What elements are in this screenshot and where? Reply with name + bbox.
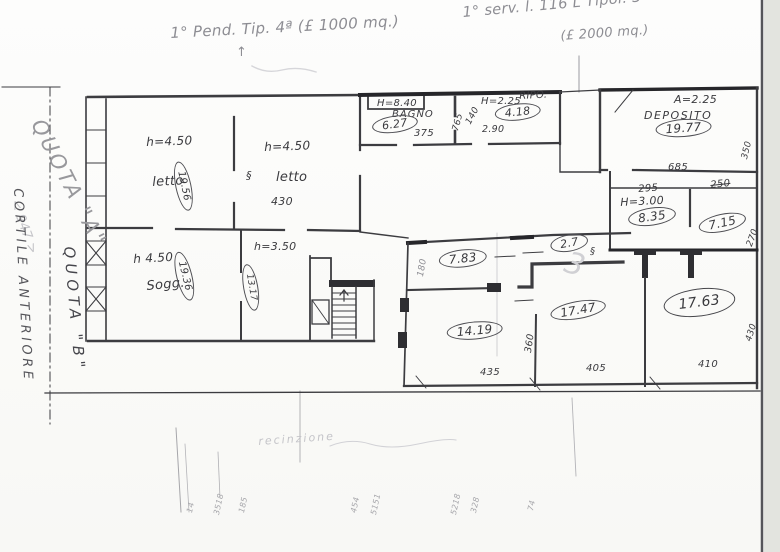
room-letto2-name: letto (276, 171, 307, 184)
door-symbol: § (590, 247, 595, 257)
dim-405: 405 (586, 364, 606, 374)
room-rip-name: RIPO. (519, 91, 548, 102)
dim-410: 410 (698, 360, 718, 370)
dim-435: 435 (480, 368, 500, 378)
door-leaf (615, 90, 633, 112)
scanned-floor-plan-page: 1° Pend. Tip. 4ª (£ 1000 mq.) ↑ 1° serv.… (0, 0, 780, 552)
room-350-height: h=3.50 (254, 241, 296, 252)
room-letto2-height: h=4.50 (264, 139, 311, 153)
door-symbol: § (246, 170, 252, 181)
room-letto1-height: h=4.50 (146, 134, 193, 148)
room-bagno-width: 375 (414, 129, 434, 139)
courtyard-line (45, 391, 760, 393)
scan-edge-band (764, 0, 780, 552)
room-deposito-width: 685 (668, 163, 688, 173)
room-bagno-height: H=8.40 (377, 99, 417, 109)
room-sogg-height: h 4.50 (133, 251, 174, 265)
dim-250-struck: 250 (710, 179, 731, 191)
scan-bottom-shadow (0, 541, 780, 552)
room-letto2-width: 430 (271, 196, 293, 207)
pier-x-box (86, 241, 106, 311)
dim-360: 360 (524, 333, 536, 353)
room-rip-width: 2.90 (482, 125, 504, 135)
floor-plan-drawing (0, 0, 780, 552)
room-deposito-height: A=2.25 (674, 94, 717, 105)
arrow-up-icon: ↑ (236, 46, 247, 59)
